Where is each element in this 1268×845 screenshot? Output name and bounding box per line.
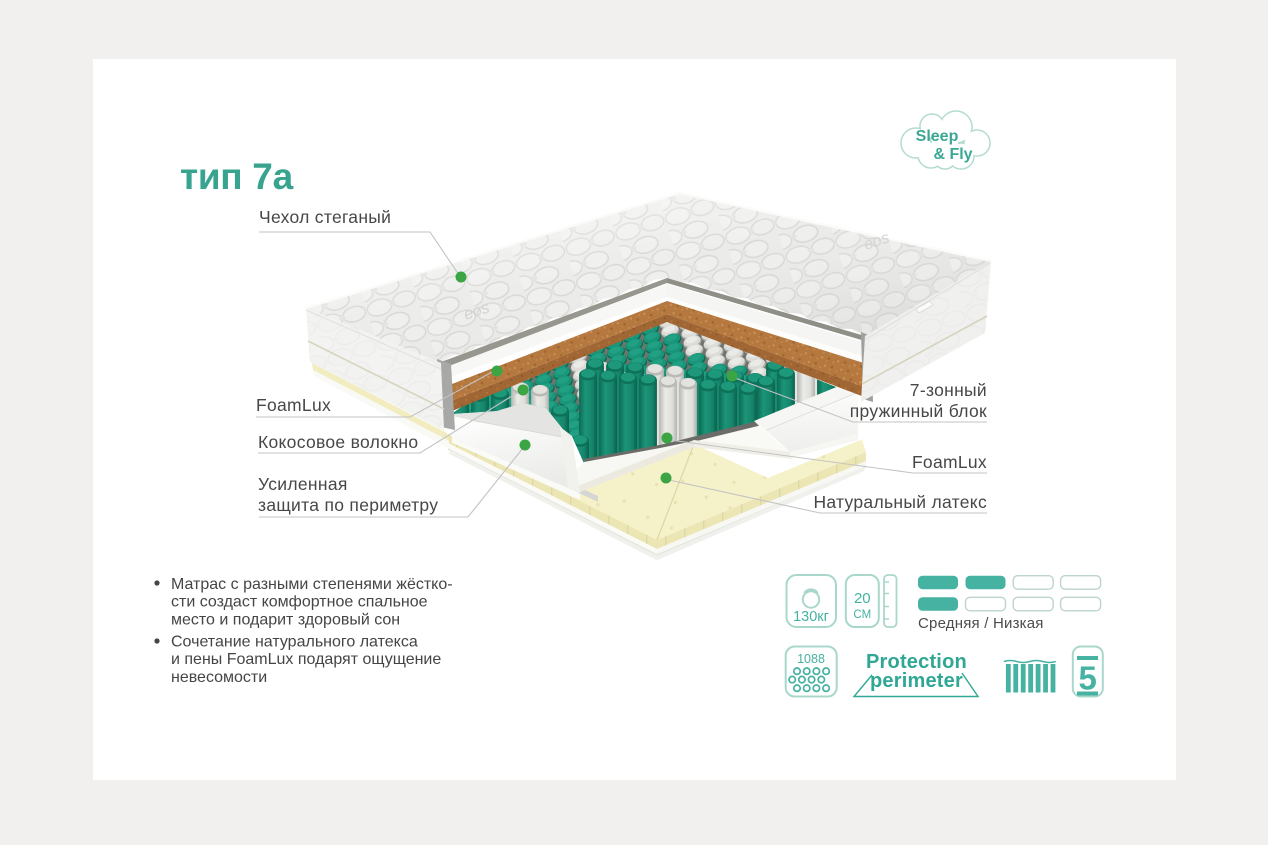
svg-text:Sleep: Sleep bbox=[916, 128, 959, 145]
svg-text:Матрас с разными степенями жёс: Матрас с разными степенями жёстко- bbox=[171, 576, 453, 593]
svg-text:защита по периметру: защита по периметру bbox=[258, 495, 438, 515]
svg-text:Кокосовое волокно: Кокосовое волокно bbox=[258, 432, 418, 452]
svg-text:130кг: 130кг bbox=[793, 609, 829, 625]
svg-text:невесомости: невесомости bbox=[171, 669, 267, 686]
svg-text:perimeter: perimeter bbox=[870, 670, 963, 692]
svg-text:Чехол стеганый: Чехол стеганый bbox=[259, 207, 391, 227]
svg-text:FoamLux: FoamLux bbox=[912, 452, 987, 472]
svg-text:1088: 1088 bbox=[797, 652, 825, 666]
svg-text:Средняя / Низкая: Средняя / Низкая bbox=[918, 615, 1044, 632]
svg-text:Сочетание натурального латекса: Сочетание натурального латекса bbox=[171, 634, 418, 651]
svg-text:СМ: СМ bbox=[853, 609, 871, 621]
svg-text:FoamLux: FoamLux bbox=[256, 395, 331, 415]
svg-text:место и подарит здоровый сон: место и подарит здоровый сон bbox=[171, 611, 400, 628]
svg-text:сти создаст комфортное спальн: сти создаст комфортное спальное bbox=[171, 594, 428, 611]
svg-text:Усиленная: Усиленная bbox=[258, 474, 348, 494]
svg-text:& Fly: & Fly bbox=[933, 146, 972, 163]
svg-text:Натуральный латекс: Натуральный латекс bbox=[813, 492, 987, 512]
svg-text:пружинный блок: пружинный блок bbox=[850, 401, 987, 421]
svg-text:тип 7а: тип 7а bbox=[180, 156, 294, 197]
svg-text:7-зонный: 7-зонный bbox=[910, 380, 987, 400]
svg-text:5: 5 bbox=[1079, 660, 1097, 697]
svg-text:и пены FoamLux подарят ощущени: и пены FoamLux подарят ощущение bbox=[171, 651, 441, 668]
svg-text:20: 20 bbox=[854, 590, 871, 607]
